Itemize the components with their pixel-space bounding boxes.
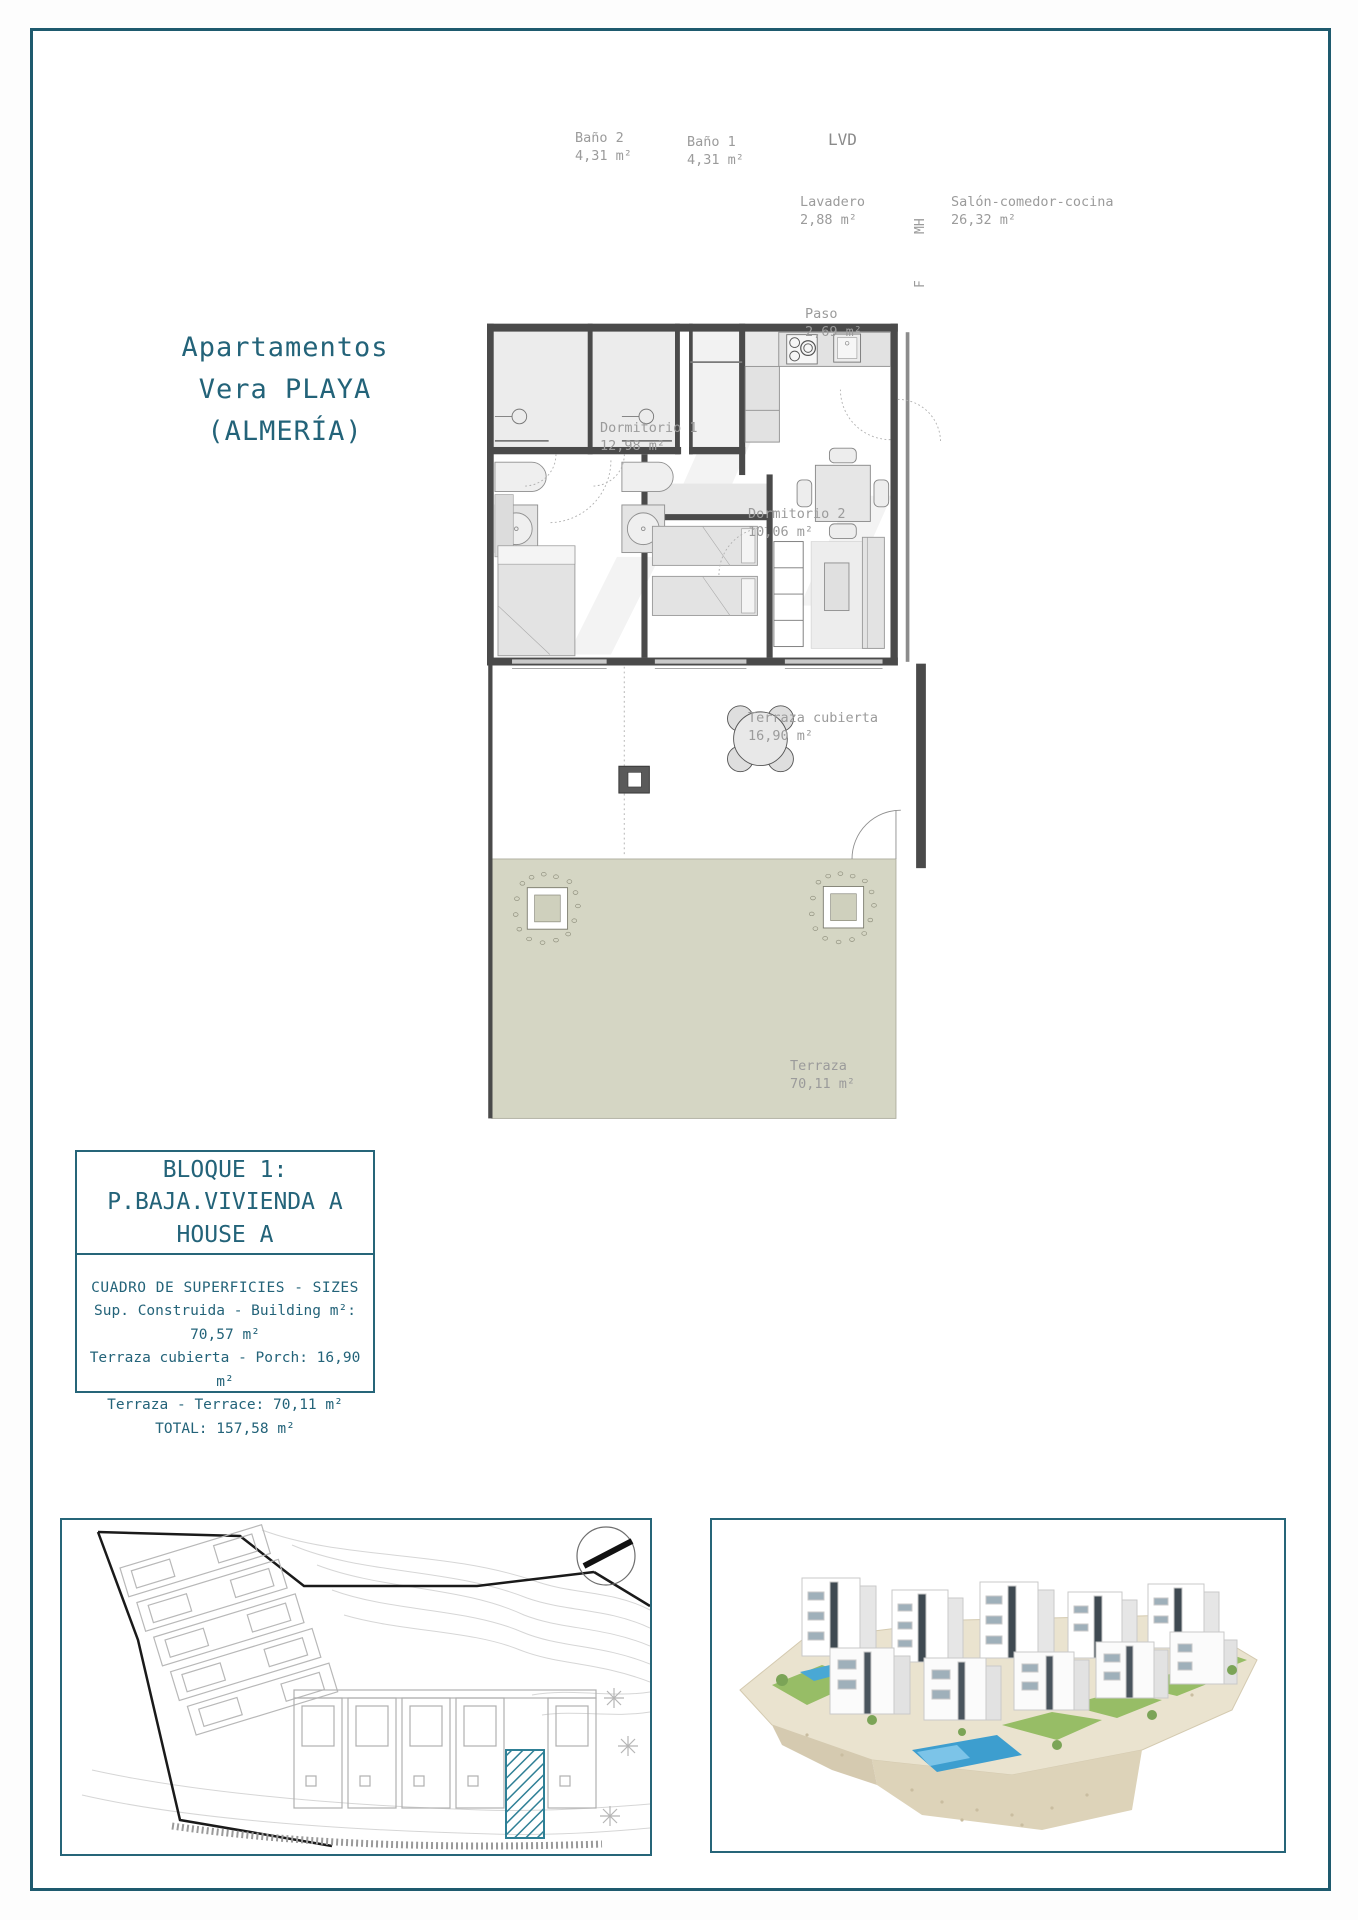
unit-title-line3: HOUSE A xyxy=(77,1219,373,1252)
sizes-row-total: TOTAL: 157,58 m² xyxy=(77,1418,373,1441)
site-plan-panel xyxy=(60,1518,652,1856)
sizes-row-porch: Terraza cubierta - Porch: 16,90 m² xyxy=(77,1347,373,1394)
shelving-icon xyxy=(774,542,803,647)
project-title-line1: Apartamentos xyxy=(105,327,465,369)
unit-title-line1: BLOQUE 1: xyxy=(77,1154,373,1187)
sizes-heading: CUADRO DE SUPERFICIES - SIZES xyxy=(77,1277,373,1300)
appliance-label-f: F xyxy=(913,280,928,288)
room-label-terraza: Terraza 70,11 m² xyxy=(790,1058,855,1093)
render-panel xyxy=(710,1518,1286,1853)
project-title-line3: (ALMERÍA) xyxy=(105,411,465,453)
sizes-table: CUADRO DE SUPERFICIES - SIZES Sup. Const… xyxy=(77,1255,373,1441)
room-label-lavadero: Lavadero 2,88 m² xyxy=(800,194,865,229)
site-plan-drawing xyxy=(62,1520,650,1854)
sizes-row-building: Sup. Construida - Building m²: 70,57 m² xyxy=(77,1300,373,1347)
sofa-icon xyxy=(862,537,884,648)
brochure-page: Apartamentos Vera PLAYA (ALMERÍA) xyxy=(0,0,1358,1920)
room-label-terraza-cubierta: Terraza cubierta 16,90 m² xyxy=(748,710,878,745)
floor-plan: Baño 2 4,31 m² Baño 1 4,31 m² LVD Lavade… xyxy=(487,98,1250,1410)
room-label-bano2: Baño 2 4,31 m² xyxy=(575,130,632,165)
room-label-dormitorio2: Dormitorio 2 10,06 m² xyxy=(748,506,846,541)
room-label-bano1: Baño 1 4,31 m² xyxy=(687,134,744,169)
project-title: Apartamentos Vera PLAYA (ALMERÍA) xyxy=(105,327,465,453)
unit-title: BLOQUE 1: P.BAJA.VIVIENDA A HOUSE A xyxy=(77,1152,373,1255)
bedroom2-furniture xyxy=(652,526,757,615)
aerial-render-illustration xyxy=(712,1520,1284,1851)
highlighted-unit xyxy=(506,1750,544,1838)
room-label-dormitorio1: Dormitorio 1 12,98 m² xyxy=(600,420,698,455)
room-label-lvd: LVD xyxy=(828,130,857,151)
sizes-row-terrace: Terraza - Terrace: 70,11 m² xyxy=(77,1394,373,1417)
bbq-planter-icon xyxy=(619,766,650,793)
project-title-line2: Vera PLAYA xyxy=(105,369,465,411)
floor-plan-drawing xyxy=(487,98,1250,1410)
coffee-table-icon xyxy=(825,563,849,611)
room-label-salon: Salón-comedor-cocina 26,32 m² xyxy=(951,194,1114,229)
living-furniture xyxy=(774,448,889,648)
gate-swing-arc xyxy=(852,810,901,859)
unit-info-box: BLOQUE 1: P.BAJA.VIVIENDA A HOUSE A CUAD… xyxy=(75,1150,375,1393)
room-label-paso: Paso 2,69 m² xyxy=(805,306,862,341)
unit-title-line2: P.BAJA.VIVIENDA A xyxy=(77,1186,373,1219)
appliance-label-mh: MH xyxy=(913,218,928,234)
